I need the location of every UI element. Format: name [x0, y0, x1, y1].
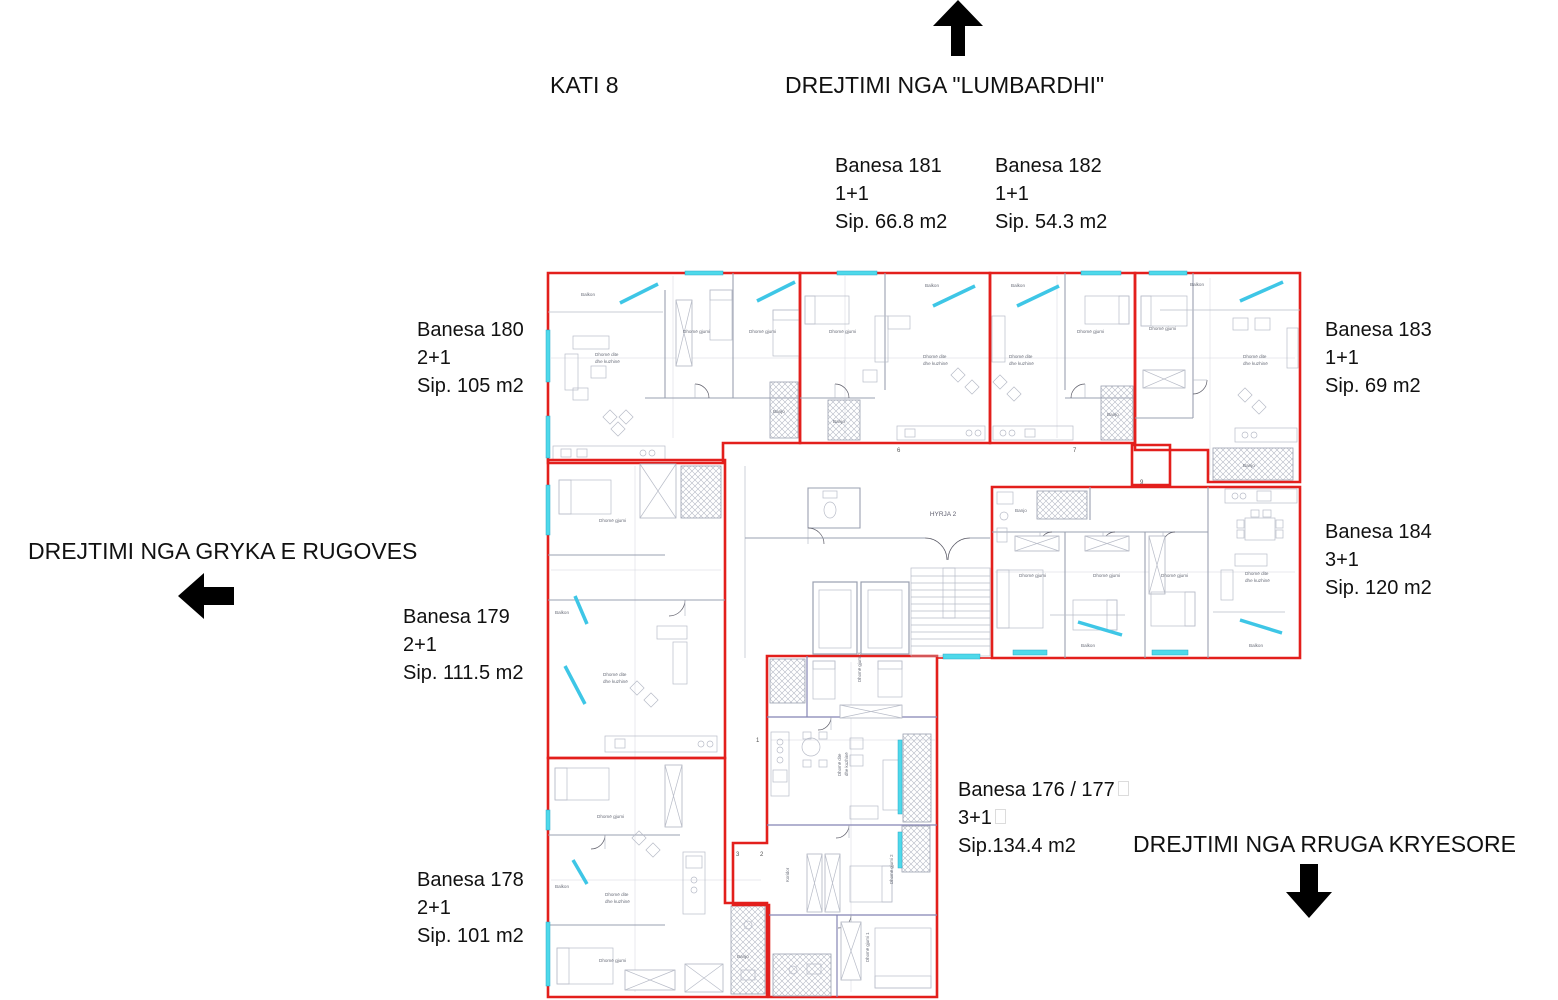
- room-label-living: dhe kuzhinë: [605, 899, 630, 904]
- room-label-bedroom: Dhomë gjumi: [1149, 326, 1176, 331]
- room-label-corridor: Koridor: [785, 867, 790, 882]
- axis-number: 7: [1073, 448, 1077, 454]
- room-label-living: dhe kuzhinë: [1009, 361, 1034, 366]
- room-label-living: dhe kuzhinë: [603, 679, 628, 684]
- room-label-bath: Banjo: [737, 954, 749, 959]
- unit-banesa-183: Balkon Dhomë gjumi Dhomë dite dhe kuzhin…: [1132, 271, 1300, 485]
- room-label-living: Dhomë dite: [1245, 571, 1269, 576]
- room-label-balkon: Balkon: [555, 884, 569, 889]
- room-label-bedroom: Dhomë gjumi: [1019, 573, 1046, 578]
- floor-title: KATI 8: [550, 72, 619, 99]
- room-label-living: Dhomë dite: [1243, 354, 1267, 359]
- unit-banesa-184: Banjo Dhomë gjumi Dhomë gjumi Dhomë gjum…: [992, 487, 1300, 658]
- room-label-bedroom: Dhomë gjumi: [1161, 573, 1188, 578]
- apartment-type: 2+1: [417, 894, 524, 922]
- room-label-bedroom: Dhomë gjumi: [1093, 573, 1120, 578]
- axis-number: 2: [760, 852, 764, 858]
- apartment-name: Banesa 182: [995, 152, 1107, 180]
- core-hyrja-2: HYRJA 2: [745, 466, 992, 659]
- room-label-balkon: Balkon: [555, 610, 569, 615]
- room-label-living: Dhomë dite: [837, 753, 842, 776]
- apartment-label-banesa-179: Banesa 179 2+1 Sip. 111.5 m2: [403, 603, 523, 687]
- apartment-name: Banesa 181: [835, 152, 947, 180]
- apartment-name: Banesa 178: [417, 866, 524, 894]
- room-label-living: dhe kuzhinë: [595, 359, 620, 364]
- unit-banesa-181: Balkon Dhomë gjumi Dhomë dite dhe kuzhin…: [800, 271, 990, 443]
- apartment-name: Banesa 184: [1325, 518, 1432, 546]
- room-label-balkon: Balkon: [1190, 282, 1204, 287]
- room-label-bedroom2: Dhomë gjumi 2: [889, 854, 894, 884]
- apartment-area: Sip. 120 m2: [1325, 574, 1432, 602]
- apartment-area: Sip. 101 m2: [417, 922, 524, 950]
- room-label-living: Dhomë dite: [595, 352, 619, 357]
- apartment-type: 1+1: [1325, 344, 1432, 372]
- room-label-balkon: Balkon: [1081, 643, 1095, 648]
- entry-label: HYRJA 2: [930, 511, 957, 518]
- direction-left-arrow-icon: [178, 573, 234, 619]
- room-label-balkon: Balkon: [925, 283, 939, 288]
- apartment-name: Banesa 179: [403, 603, 523, 631]
- apartment-type: 3+1: [1325, 546, 1432, 574]
- apartment-type: 2+1: [417, 344, 524, 372]
- direction-up-arrow-icon: [933, 0, 983, 56]
- room-label-bedroom: Dhomë gjumi: [599, 518, 626, 523]
- room-label-bath: Banjo: [833, 419, 845, 424]
- room-label-bedroom: Dhomë gjumi: [1077, 329, 1104, 334]
- room-label-bath: Banjo: [1015, 508, 1027, 513]
- apartment-name: Banesa 180: [417, 316, 524, 344]
- room-label-bedroom1: Dhomë gjumi 1: [865, 932, 870, 962]
- room-label-living: dhe kuzhinë: [1243, 361, 1268, 366]
- apartment-label-banesa-178: Banesa 178 2+1 Sip. 101 m2: [417, 866, 524, 950]
- apartment-label-banesa-184: Banesa 184 3+1 Sip. 120 m2: [1325, 518, 1432, 602]
- room-label-bedroom: Dhomë gjumi: [683, 329, 710, 334]
- apartment-area: Sip. 54.3 m2: [995, 208, 1107, 236]
- apartment-label-banesa-181: Banesa 181 1+1 Sip. 66.8 m2: [835, 152, 947, 236]
- room-label-living: dhe kuzhinë: [844, 752, 849, 776]
- room-label-bath: Banjo: [1107, 412, 1119, 417]
- floor-plan-drawing: Balkon Dhomë gjumi Dhomë gjumi Dhomë dit…: [545, 270, 1305, 1000]
- room-label-bedroom: Dhomë gjumi: [749, 329, 776, 334]
- direction-left-label: DREJTIMI NGA GRYKA E RUGOVES: [28, 538, 417, 565]
- direction-top-label: DREJTIMI NGA "LUMBARDHI": [785, 72, 1104, 99]
- room-label-living: Dhomë dite: [605, 892, 629, 897]
- apartment-label-banesa-182: Banesa 182 1+1 Sip. 54.3 m2: [995, 152, 1107, 236]
- floor-plan-page: KATI 8 DREJTIMI NGA "LUMBARDHI" Banesa 1…: [0, 0, 1558, 1000]
- apartment-label-banesa-183: Banesa 183 1+1 Sip. 69 m2: [1325, 316, 1432, 400]
- apartment-area: Sip. 111.5 m2: [403, 659, 523, 687]
- room-label-bedroom3: Dhomë gjumi 3: [857, 652, 862, 682]
- apartment-name: Banesa 183: [1325, 316, 1432, 344]
- room-label-living: dhe kuzhinë: [1245, 578, 1270, 583]
- room-label-bedroom: Dhomë gjumi: [597, 814, 624, 819]
- apartment-type: 2+1: [403, 631, 523, 659]
- room-label-living: Dhomë dite: [603, 672, 627, 677]
- room-label-bath: Banjo: [773, 409, 785, 414]
- room-label-bedroom: Dhomë gjumi: [599, 958, 626, 963]
- room-label-living: Dhomë dite: [1009, 354, 1033, 359]
- room-label-balkon: Balkon: [1249, 643, 1263, 648]
- unit-banesa-179: Dhomë gjumi Balkon Dhomë dite dhe kuzhin…: [546, 460, 725, 758]
- apartment-label-banesa-180: Banesa 180 2+1 Sip. 105 m2: [417, 316, 524, 400]
- apartment-area: Sip. 105 m2: [417, 372, 524, 400]
- room-label-bedroom: Dhomë gjumi: [829, 329, 856, 334]
- room-label-living: dhe kuzhinë: [923, 361, 948, 366]
- unit-banesa-182: Balkon Dhomë gjumi Dhomë dite dhe kuzhin…: [990, 271, 1135, 443]
- room-label-balkon: Balkon: [1011, 283, 1025, 288]
- axis-number: 6: [897, 448, 901, 454]
- apartment-type: 1+1: [835, 180, 947, 208]
- room-label-living: Dhomë dite: [923, 354, 947, 359]
- apartment-type: 1+1: [995, 180, 1107, 208]
- apartment-area: Sip. 66.8 m2: [835, 208, 947, 236]
- apartment-area: Sip. 69 m2: [1325, 372, 1432, 400]
- axis-number: 1: [756, 738, 760, 744]
- room-label-balkon: Balkon: [581, 292, 595, 297]
- room-label-bath: Banjo: [1243, 463, 1255, 468]
- axis-number: 3: [736, 852, 740, 858]
